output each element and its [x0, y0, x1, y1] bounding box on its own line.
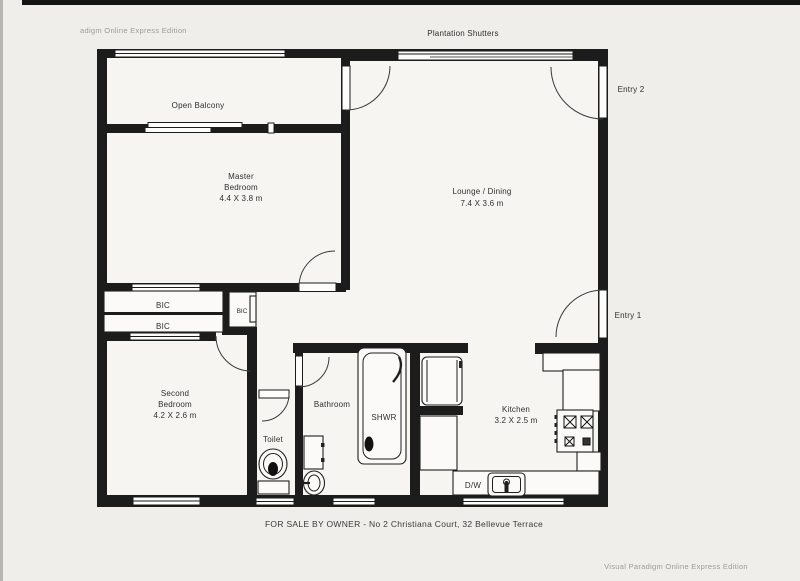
kitchen-counter-right	[563, 370, 600, 411]
kitchen-sink	[488, 473, 525, 496]
second-bedroom-window	[133, 497, 200, 505]
second-bedroom-dims: 4.2 X 2.6 m	[153, 411, 196, 420]
second-bedroom-label-line1: Second	[161, 389, 189, 398]
wall-kitchen-stub	[420, 406, 463, 415]
bathtub-shower	[358, 348, 406, 464]
plantation-shutters-label: Plantation Shutters	[427, 29, 498, 38]
entry2-label: Entry 2	[618, 85, 645, 94]
toilet-window	[256, 498, 294, 505]
master-bedroom-label-line1: Master	[228, 172, 254, 181]
wall-kitchen-top-left	[420, 343, 468, 353]
kitchen-counter-top	[543, 353, 600, 371]
floor-plan-drawing: adigm Online Express Edition Plantation …	[0, 0, 800, 581]
bic-small-label: BIC	[237, 308, 248, 315]
bic-top-label: BIC	[156, 301, 170, 310]
shower-label: SHWR	[371, 413, 396, 422]
kitchen-counter-below-stove	[577, 452, 601, 471]
bathroom-window	[333, 498, 375, 505]
master-bedroom-dims: 4.4 X 3.8 m	[219, 194, 262, 203]
watermark-top-left: adigm Online Express Edition	[80, 26, 187, 35]
kitchen-label: Kitchen	[502, 405, 530, 414]
toilet-label: Toilet	[263, 435, 283, 444]
lounge-dims: 7.4 X 3.6 m	[460, 199, 503, 208]
toilet-fixture	[258, 449, 289, 494]
wall-kitchen-top-right	[535, 343, 601, 354]
balcony-label: Open Balcony	[172, 101, 225, 110]
second-bedroom-label-line2: Bedroom	[158, 400, 192, 409]
kitchen-window	[463, 498, 564, 505]
master-closet-sliding-door	[132, 284, 200, 291]
bathroom-vanity	[304, 436, 325, 469]
watermark-bottom-right: Visual Paradigm Online Express Edition	[604, 562, 748, 571]
bathtub-drain	[365, 437, 374, 452]
bic-divider	[104, 312, 223, 315]
bic-bottom-label: BIC	[156, 322, 170, 331]
wall-left	[97, 49, 107, 507]
kitchen-dims: 3.2 X 2.5 m	[494, 416, 537, 425]
entry1-label: Entry 1	[615, 311, 642, 320]
apartment-floor	[97, 49, 608, 507]
stove	[555, 410, 594, 452]
fridge	[422, 357, 463, 405]
kitchen-counter-left	[420, 416, 457, 470]
plantation-shutters-window	[398, 51, 573, 60]
master-bedroom-label-line2: Bedroom	[224, 183, 258, 192]
second-bedroom-closet-sliding-door	[130, 333, 200, 340]
bathroom-label: Bathroom	[314, 400, 350, 409]
for-sale-caption: FOR SALE BY OWNER - No 2 Christiana Cour…	[265, 519, 543, 529]
lounge-label: Lounge / Dining	[452, 187, 511, 196]
floor-plan-page: adigm Online Express Edition Plantation …	[0, 0, 800, 581]
wall-second-bedroom-right	[247, 334, 257, 497]
balcony-window	[115, 50, 285, 57]
dishwasher-label: D/W	[465, 481, 481, 490]
wall-kitchen-left	[410, 343, 420, 507]
scan-edge-top	[22, 0, 800, 5]
scan-edge-left	[0, 0, 3, 581]
wall-bic-small-bottom	[222, 327, 257, 335]
